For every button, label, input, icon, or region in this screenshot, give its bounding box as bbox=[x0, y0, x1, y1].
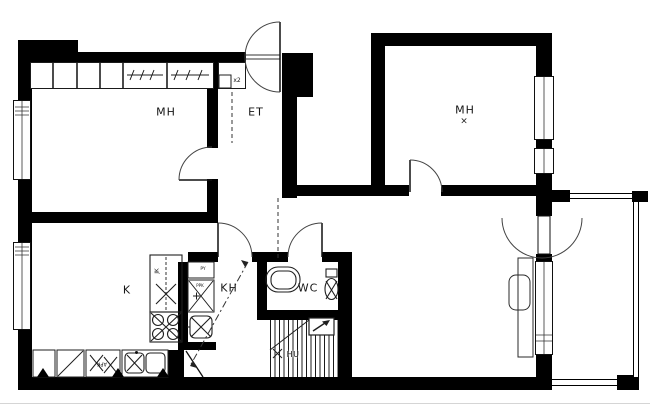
wall-bottom bbox=[18, 377, 552, 390]
entrance-door bbox=[245, 22, 280, 92]
room-label-entry: ET bbox=[248, 107, 264, 118]
wall-bedroom-right-bottom-a bbox=[371, 185, 409, 196]
annotation-dishwasher: APK bbox=[97, 361, 107, 366]
balcony-post-top-right bbox=[632, 191, 648, 202]
wall-bedroom-right-top bbox=[371, 33, 552, 46]
balcony-rail-right bbox=[633, 202, 639, 377]
living-room-furniture bbox=[509, 258, 533, 357]
wc-door bbox=[288, 223, 322, 257]
room-label-bedroom-left: MH bbox=[156, 107, 176, 118]
annotation-laundry: PY bbox=[200, 268, 205, 273]
balcony-door bbox=[502, 216, 582, 258]
wall-bedroom-right-bottom-b bbox=[441, 185, 552, 196]
water-point-markers bbox=[37, 368, 169, 377]
vent-line bbox=[190, 260, 248, 368]
wall-balcony-bottom bbox=[536, 355, 552, 380]
wc-basin-icon bbox=[266, 267, 300, 292]
wall-top bbox=[18, 52, 246, 62]
balcony-rail-bottom bbox=[552, 379, 617, 386]
annotation-washer: PPK bbox=[196, 284, 203, 288]
window-bedroom-left bbox=[13, 100, 31, 180]
wall-wc-left bbox=[257, 262, 267, 316]
window-bedroom-right-2 bbox=[534, 148, 554, 174]
bathroom-door bbox=[218, 223, 252, 257]
bedroom-left-door bbox=[179, 147, 212, 180]
wardrobe-row bbox=[30, 62, 214, 89]
wall-wc-stair-divider bbox=[257, 310, 352, 320]
annotation-closet-x2: x2 bbox=[233, 78, 240, 84]
toilet-icon bbox=[325, 269, 338, 300]
window-kitchen bbox=[13, 242, 31, 330]
room-label-bathroom: KH bbox=[220, 283, 238, 294]
wall-balcony-mid bbox=[536, 254, 552, 261]
laundry-sink-icon bbox=[187, 316, 212, 338]
balcony-rail-top bbox=[570, 193, 632, 199]
window-bedroom-right-1 bbox=[534, 76, 554, 140]
annotation-fridge: JK bbox=[155, 268, 161, 273]
wall-bedroom-kitchen-divider bbox=[25, 212, 218, 223]
bedroom-right-door bbox=[410, 160, 442, 192]
room-label-toilet: WC bbox=[298, 283, 319, 294]
wall-entry-pillar bbox=[282, 53, 313, 97]
room-label-bedroom-right: MH bbox=[455, 105, 475, 116]
stairwell-hatch bbox=[270, 320, 338, 377]
wall-entry-bedroom-lower bbox=[207, 179, 218, 223]
room-label-kitchen: K bbox=[123, 285, 131, 296]
balcony-post-bottom-right bbox=[617, 375, 639, 390]
balcony-post-top-left bbox=[550, 190, 570, 202]
room-marker-bedroom-right: × bbox=[460, 118, 468, 127]
wall-hall-mid bbox=[252, 252, 288, 262]
wall-kitchen-bathroom bbox=[178, 262, 188, 350]
closet-x2 bbox=[218, 62, 246, 89]
kitchen-nook-door bbox=[185, 351, 204, 377]
kitchen-sink-icon bbox=[125, 351, 165, 373]
floor-plan: MH ET MH × K KH WC HU x2 JK PY PPK APK bbox=[0, 0, 650, 404]
window-living-room bbox=[535, 261, 553, 355]
room-label-stairwell: HU bbox=[287, 351, 300, 359]
wall-hall-jamb bbox=[188, 252, 218, 262]
wall-kitchen-block bbox=[168, 350, 184, 377]
wall-entry-right bbox=[282, 97, 297, 198]
wall-bedroom-right-left bbox=[371, 33, 385, 196]
